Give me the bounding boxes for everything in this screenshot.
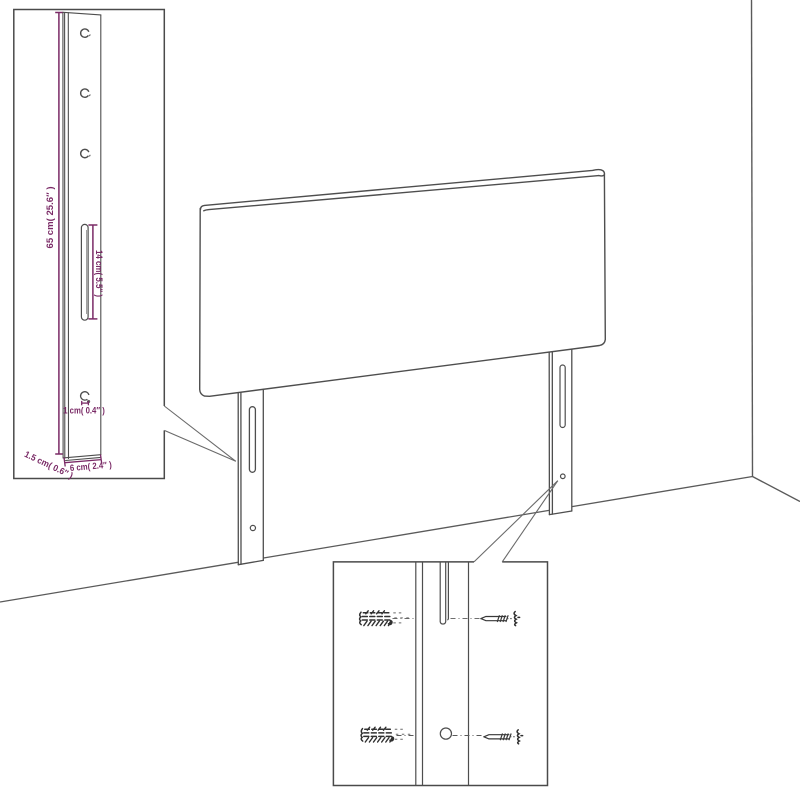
svg-text:14 cm( 5.5″ ): 14 cm( 5.5″ ) [94, 250, 104, 297]
svg-text:65 cm( 25.6″ ): 65 cm( 25.6″ ) [45, 186, 55, 248]
svg-text:1 cm( 0.4″ ): 1 cm( 0.4″ ) [63, 406, 105, 416]
